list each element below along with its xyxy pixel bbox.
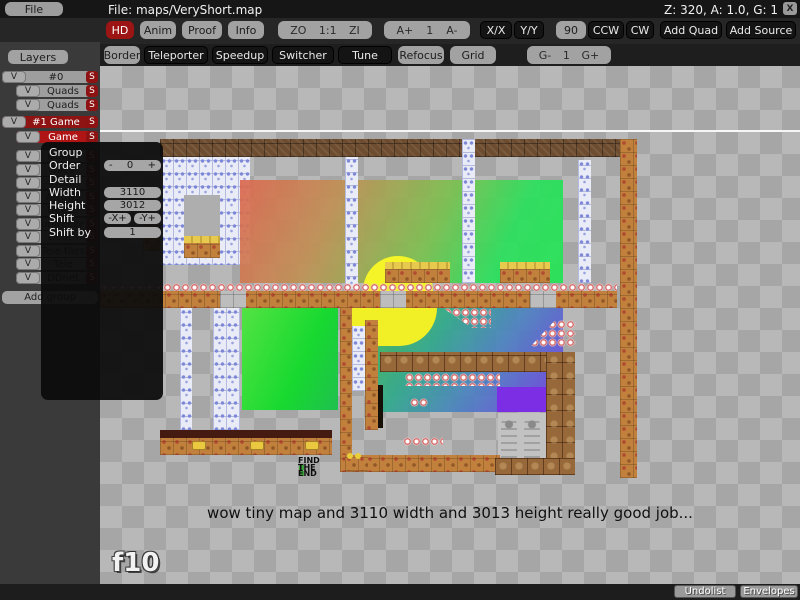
close-icon[interactable]: X [783,2,797,15]
map-canvas[interactable]: FIND THE END wow tiny map and 3110 width… [100,66,800,584]
visibility-toggle[interactable]: V [16,99,40,111]
order-minus-button[interactable]: - [109,160,113,171]
visibility-toggle[interactable]: V [16,150,40,162]
rotate-cw-button[interactable]: CW [626,21,654,39]
shift-y-button[interactable]: -Y+ [134,213,161,224]
tile-column [340,308,352,472]
layer-group-row-game[interactable]: V #1 Game S [2,116,98,128]
map-file-title: File: maps/VeryShort.map [108,3,262,17]
stone-patch [380,291,406,308]
layer-group-label: #1 Game [26,116,86,128]
menu-bar: File File: maps/VeryShort.map Z: 320, A:… [0,0,800,18]
crate-bottom-row [495,458,575,475]
visibility-toggle[interactable]: V [2,116,26,128]
switcher-button[interactable]: Switcher [272,46,334,64]
stone-patch [220,291,246,308]
solo-toggle[interactable]: S [86,71,98,83]
anim-faster-button[interactable]: A+ [396,24,413,37]
solo-toggle[interactable]: S [86,116,98,128]
teleporter-button[interactable]: Teleporter [144,46,208,64]
rotate-amount-button[interactable]: 90 [556,21,586,39]
visibility-toggle[interactable]: V [16,164,40,176]
grid-larger-button[interactable]: G+ [581,49,599,62]
brick-column [345,157,358,290]
brick-column [462,139,475,283]
grid-size-value: 1 [563,49,570,62]
statue [501,419,517,458]
popup-order-label: Order [49,160,80,172]
layer-row[interactable]: V Quads S [16,85,98,97]
layer-properties-popup: Group Order - 0 + Detail Width 3110 Heig… [41,142,163,400]
speedup-button[interactable]: Speedup [212,46,268,64]
add-source-button[interactable]: Add Source [726,21,796,39]
tile-toolbar: Border Teleporter Speedup Switcher Tune … [100,44,800,66]
height-value-field[interactable]: 3012 [104,200,161,211]
zoom-reset-button[interactable]: 1:1 [319,24,337,37]
gem-tile [250,441,264,450]
map-editor-window: File File: maps/VeryShort.map Z: 320, A:… [0,0,800,600]
ring-pair [410,398,428,407]
popup-shift-label: Shift [49,213,74,225]
grid-toggle-button[interactable]: Grid [450,46,496,64]
zoom-anim-grid-status: Z: 320, A: 1.0, G: 1 [664,3,778,17]
undolist-button[interactable]: Undolist [674,585,736,598]
visibility-toggle[interactable]: V [16,258,40,270]
brick-column-short [352,326,365,391]
gem-tile [305,441,319,450]
grid-size-group: G- 1 G+ [527,46,611,64]
watermark-text: f10 [112,548,160,578]
brick-column [578,160,591,283]
visibility-toggle[interactable]: V [16,218,40,230]
visibility-toggle[interactable]: V [16,245,40,257]
popup-width-label: Width [49,187,81,199]
sign-line: END [298,471,317,478]
flip-x-button[interactable]: X/X [480,21,512,39]
statue [524,419,540,458]
order-plus-button[interactable]: + [148,160,156,171]
layer-group-row[interactable]: V #0 S [2,71,98,83]
layers-panel-header[interactable]: Layers [8,50,68,64]
solo-toggle[interactable]: S [86,85,98,97]
info-toggle-button[interactable]: Info [228,21,264,39]
anim-speed-group: A+ 1 A- [384,21,470,39]
brick-column [180,308,192,430]
visibility-toggle[interactable]: V [2,71,26,83]
visibility-toggle[interactable]: V [16,85,40,97]
tile-column [365,320,378,430]
quad-purple [497,387,546,412]
platform-top [184,236,220,243]
ring-row [405,373,500,386]
shift-x-button[interactable]: -X+ [104,213,131,224]
anim-toggle-button[interactable]: Anim [140,21,176,39]
door-bar [378,385,383,428]
refocus-button[interactable]: Refocus [398,46,444,64]
ring-tile-row [100,283,617,291]
ring-row-small [403,437,443,446]
border-button[interactable]: Border [104,46,140,64]
solo-toggle[interactable]: S [86,99,98,111]
coin [347,453,353,459]
visibility-toggle[interactable]: V [16,191,40,203]
popup-group-label[interactable]: Group [49,147,83,159]
add-quad-button[interactable]: Add Quad [660,21,722,39]
map-border-line [100,130,800,132]
brick-hole [184,195,220,236]
platform-top [385,262,450,269]
shift-by-value-field[interactable]: 1 [104,227,161,238]
layer-group-label: #0 [26,71,86,83]
popup-shift-by-label: Shift by [49,227,91,239]
platform-body [184,243,220,258]
map-size-caption: wow tiny map and 3110 width and 3013 hei… [100,504,800,522]
grid-smaller-button[interactable]: G- [539,49,552,62]
anim-speed-value: 1 [426,24,433,37]
brick-column-wide [213,308,240,430]
main-toolbar: HD Anim Proof Info ZO 1:1 ZI A+ 1 A- X/X… [0,18,800,44]
anim-slower-button[interactable]: A- [446,24,457,37]
hd-toggle-button[interactable]: HD [106,21,134,39]
layer-row[interactable]: V Quads S [16,99,98,111]
dark-bar [160,430,332,438]
file-menu-button[interactable]: File [5,2,63,16]
visibility-toggle[interactable]: V [16,177,40,189]
popup-height-label: Height [49,200,85,212]
popup-detail-label[interactable]: Detail [49,174,81,186]
tile-top-strip [160,139,620,157]
bottom-bar: Undolist Envelopes [0,584,800,600]
platform-body [385,269,450,283]
gem-tile [192,441,206,450]
envelopes-button[interactable]: Envelopes [740,585,798,598]
visibility-toggle[interactable]: V [16,131,40,143]
quad-green [242,308,338,410]
zoom-out-button[interactable]: ZO [290,24,306,37]
order-stepper[interactable]: - 0 + [104,160,161,171]
layer-label: Quads [40,85,86,97]
tile-right-column [620,139,637,478]
proof-toggle-button[interactable]: Proof [182,21,222,39]
rotate-ccw-button[interactable]: CCW [588,21,624,39]
zoom-in-button[interactable]: ZI [349,24,360,37]
layer-label: Quads [40,99,86,111]
width-value-field[interactable]: 3110 [104,187,161,198]
order-value: 0 [127,160,133,171]
visibility-toggle[interactable]: V [16,231,40,243]
zoom-button-group: ZO 1:1 ZI [278,21,372,39]
visibility-toggle[interactable]: V [16,204,40,216]
flip-y-button[interactable]: Y/Y [514,21,544,39]
crate-column [546,352,575,475]
find-the-end-sign: FIND THE END [298,458,338,478]
stone-patch [530,291,556,308]
platform-body [500,269,550,283]
visibility-toggle[interactable]: V [16,272,40,284]
platform-top [500,262,550,269]
coin [355,453,361,459]
tune-button[interactable]: Tune [338,46,392,64]
